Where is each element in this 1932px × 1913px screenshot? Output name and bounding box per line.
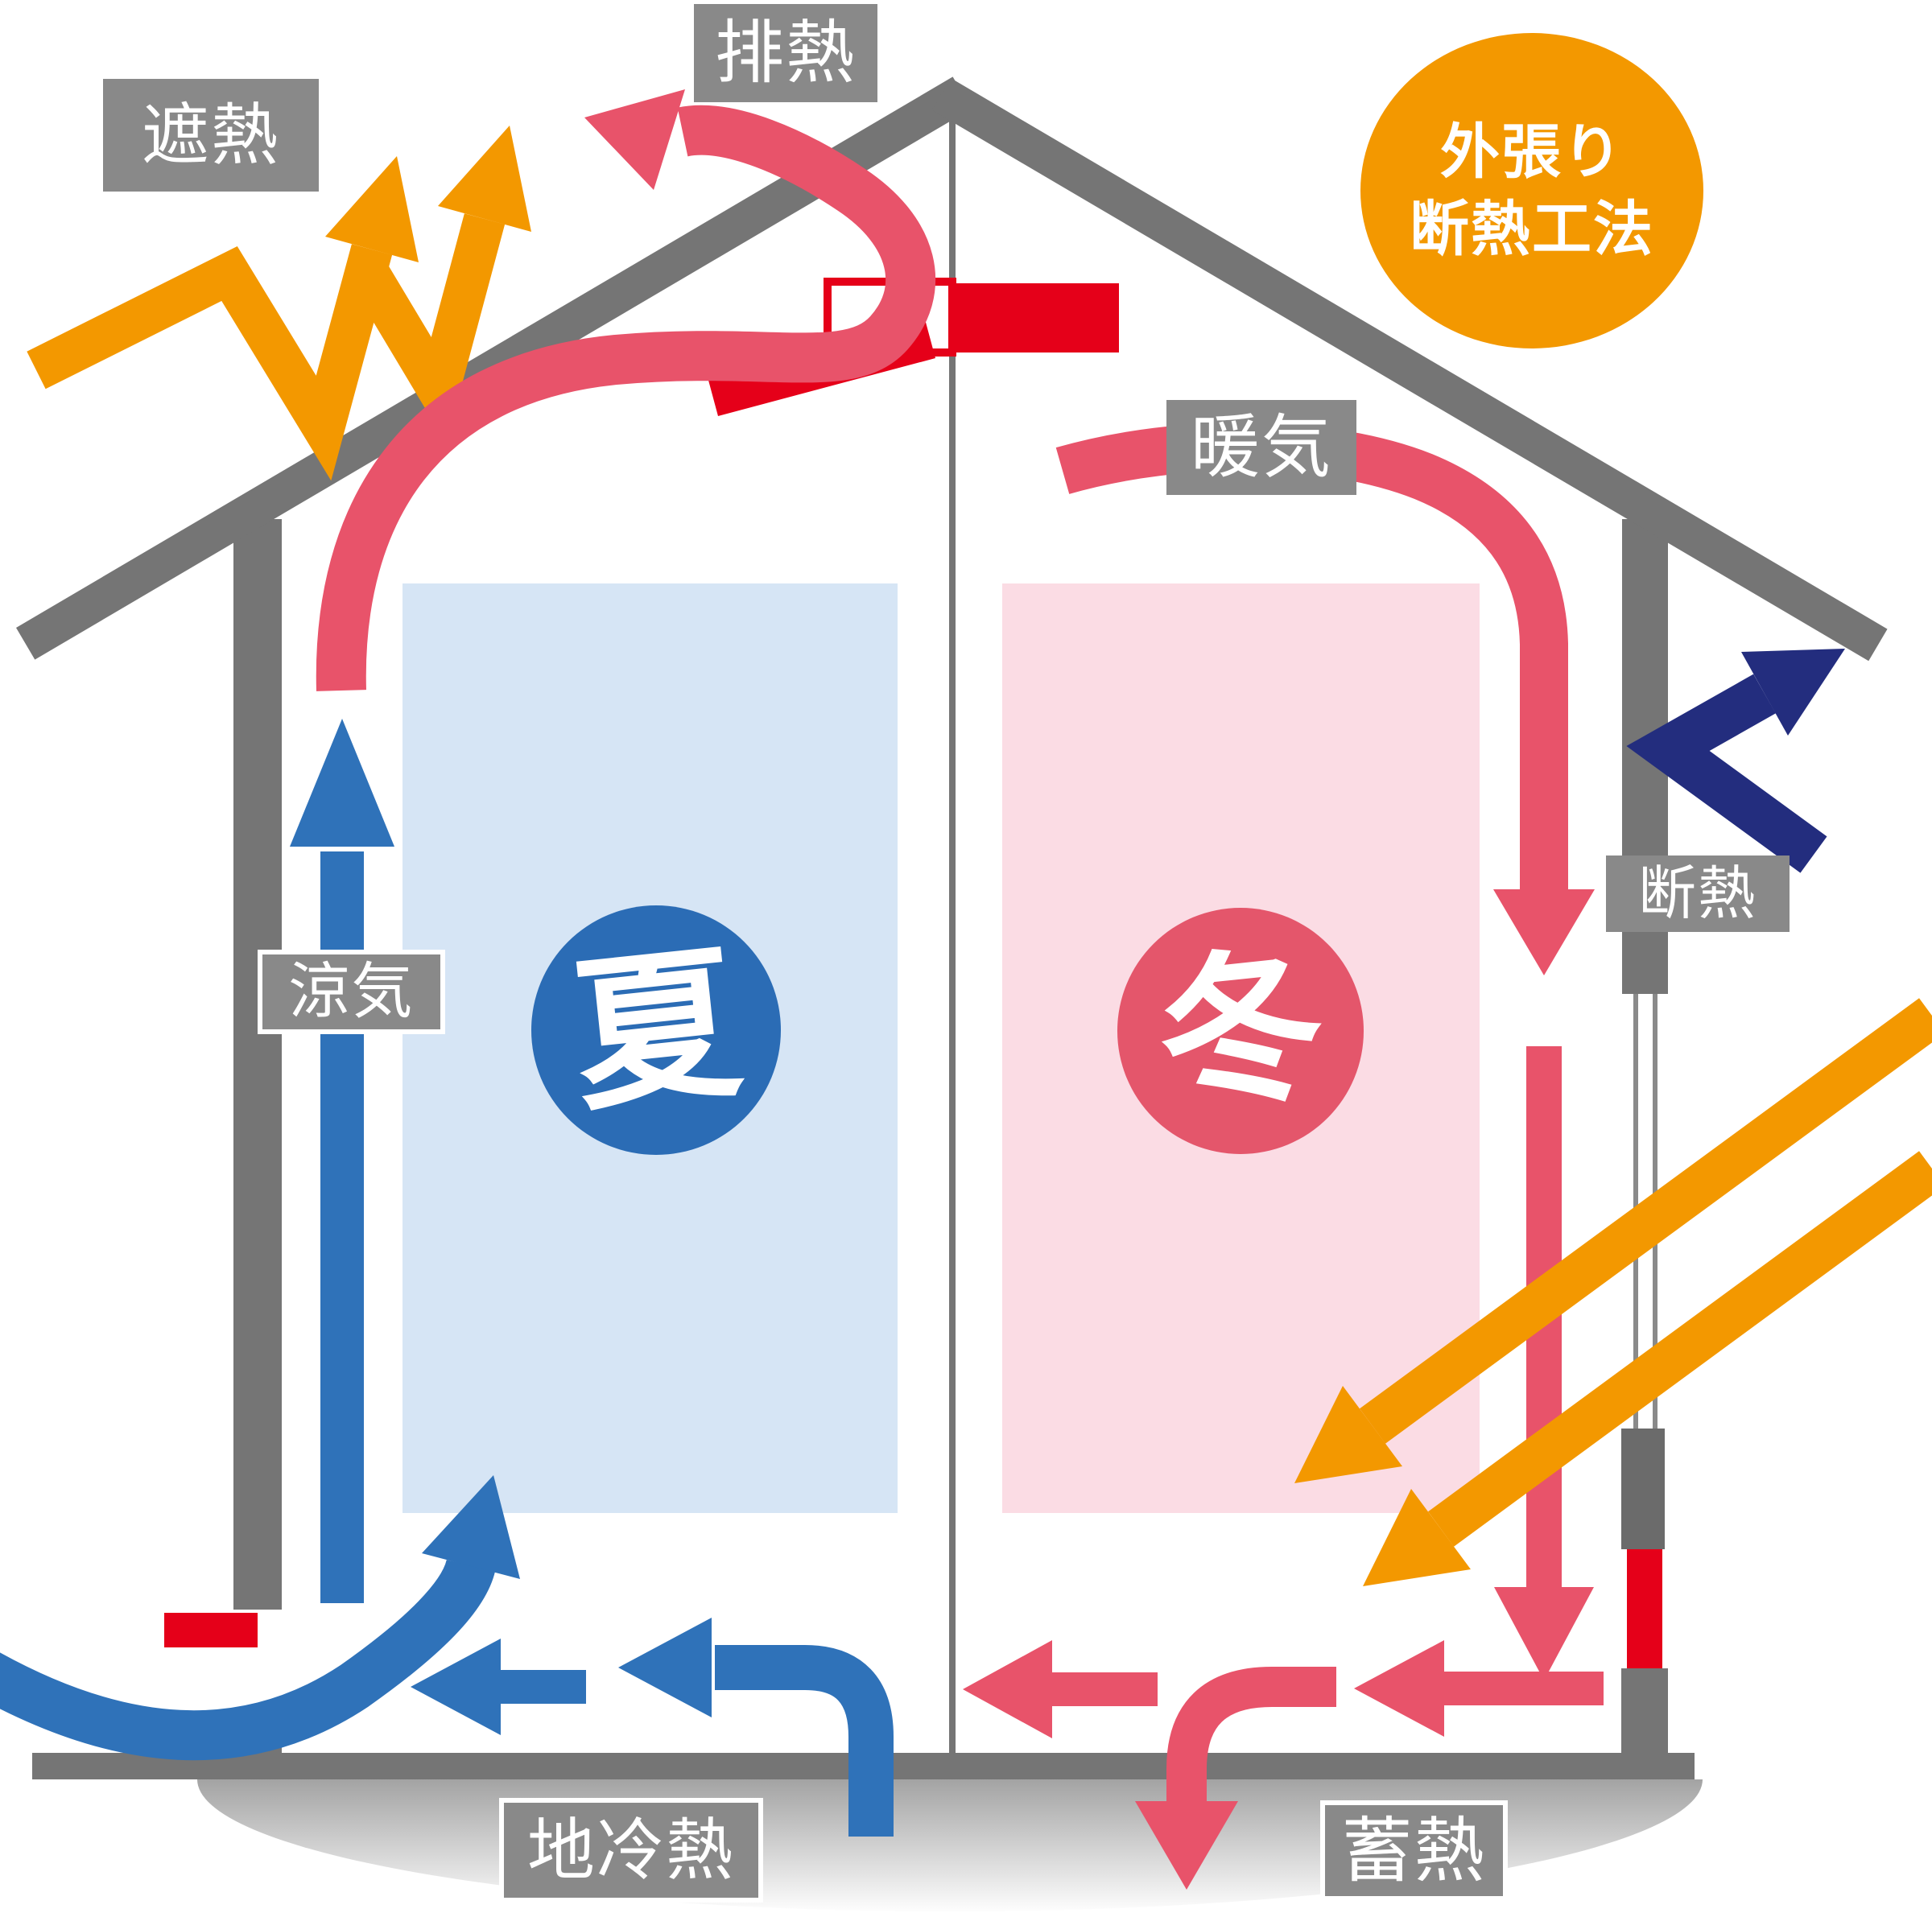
- shield-label: 遮熱: [103, 79, 319, 192]
- exhaust-label: 排熱: [694, 4, 877, 102]
- heat-storage-label: 蓄熱: [1320, 1800, 1508, 1901]
- insulation-bounce-arrow-icon: [1668, 649, 1845, 855]
- sun-ray-arrows-icon: [1294, 1016, 1932, 1586]
- method-badge-line2: 断熱工法: [1410, 191, 1654, 268]
- warm-air-label: 暖気: [1166, 400, 1356, 495]
- cool-air-arrows-icon: [0, 719, 871, 1837]
- cool-air-label: 涼気: [258, 950, 445, 1034]
- method-badge: 外張り 断熱工法: [1360, 33, 1703, 348]
- ground-cool-label: 地冷熱: [499, 1798, 763, 1903]
- insulation-label: 断熱: [1606, 855, 1790, 932]
- method-badge-line1: 外張り: [1440, 113, 1624, 191]
- insulation-diagram: 夏 冬: [0, 0, 1932, 1913]
